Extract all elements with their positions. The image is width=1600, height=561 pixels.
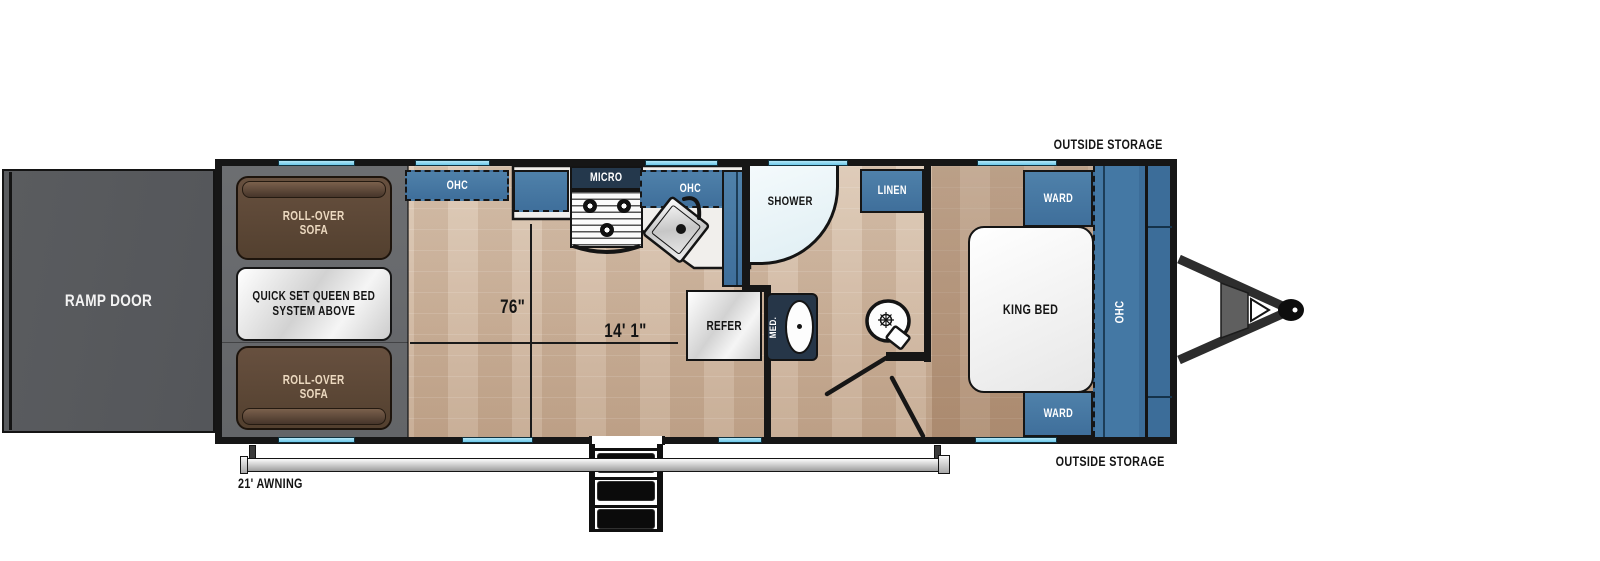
hitch-arm-top	[1179, 259, 1289, 309]
ohc-front-column	[1093, 166, 1170, 437]
window	[415, 160, 490, 166]
stove-burner	[617, 199, 631, 213]
ohc-column-line	[1148, 226, 1172, 228]
step-rung	[589, 477, 663, 480]
awning-end-cap	[240, 456, 248, 474]
awning-end-cap	[938, 455, 950, 474]
dim-width-line	[530, 224, 532, 437]
window	[278, 160, 355, 166]
window	[645, 160, 718, 166]
coupler-pin	[1293, 308, 1298, 313]
floorplan-canvas: RAMP DOOR 76" 14' 1" ROLL-OVER SOFA QUIC…	[0, 0, 1600, 561]
awning-bar	[243, 458, 950, 472]
stove-burner	[600, 223, 614, 237]
step-rung	[589, 448, 663, 451]
microwave	[570, 166, 643, 190]
pantry-divider	[736, 172, 738, 285]
refrigerator	[686, 290, 762, 361]
med-vanity	[766, 293, 818, 361]
queen-bed-note	[236, 267, 392, 341]
wardrobe-bottom	[1023, 391, 1093, 437]
sofa-bolster	[242, 181, 386, 198]
window	[977, 160, 1057, 166]
propane-cover	[1221, 283, 1248, 338]
step-rung	[589, 529, 663, 532]
garage-floor-divider	[407, 166, 409, 437]
rollover-sofa-bottom	[236, 346, 392, 430]
bath-wall-west-upper	[742, 166, 750, 292]
sink-drain	[797, 324, 802, 329]
awning-label: 21' AWNING	[238, 474, 358, 492]
outside-storage-top-label: OUTSIDE STORAGE	[1028, 135, 1188, 153]
hitch-triangle	[1251, 299, 1269, 321]
trailer-hitch	[1179, 259, 1304, 360]
garage-mid-line	[222, 342, 408, 343]
ramp-door	[2, 169, 215, 433]
dim-length-line	[410, 342, 678, 344]
toilet-alcove-wall	[886, 352, 931, 361]
stove-burner	[583, 199, 597, 213]
wardrobe-top	[1023, 170, 1093, 227]
step-tread	[597, 481, 655, 501]
ohc-column-line	[1103, 166, 1105, 437]
stove	[570, 190, 643, 248]
kitchen-base-cabinet	[513, 170, 569, 212]
window	[278, 437, 355, 443]
outside-storage-bottom-label: OUTSIDE STORAGE	[1030, 452, 1190, 470]
step-rung	[589, 505, 663, 508]
window	[768, 160, 848, 166]
ohc-column-line	[1148, 396, 1172, 398]
hitch-arm-bottom	[1179, 311, 1289, 360]
sofa-bolster	[242, 408, 386, 425]
bath-wall-east	[924, 166, 931, 362]
ohc-left-cabinet	[405, 170, 509, 201]
window	[718, 437, 762, 443]
rollover-sofa-top	[236, 176, 392, 260]
window	[975, 437, 1057, 443]
ramp-door-hinge-line	[9, 172, 12, 430]
linen-cabinet	[860, 169, 924, 213]
window	[462, 437, 533, 443]
step-tread	[597, 509, 655, 529]
king-bed	[968, 226, 1094, 393]
hitch-coupler	[1278, 299, 1304, 321]
